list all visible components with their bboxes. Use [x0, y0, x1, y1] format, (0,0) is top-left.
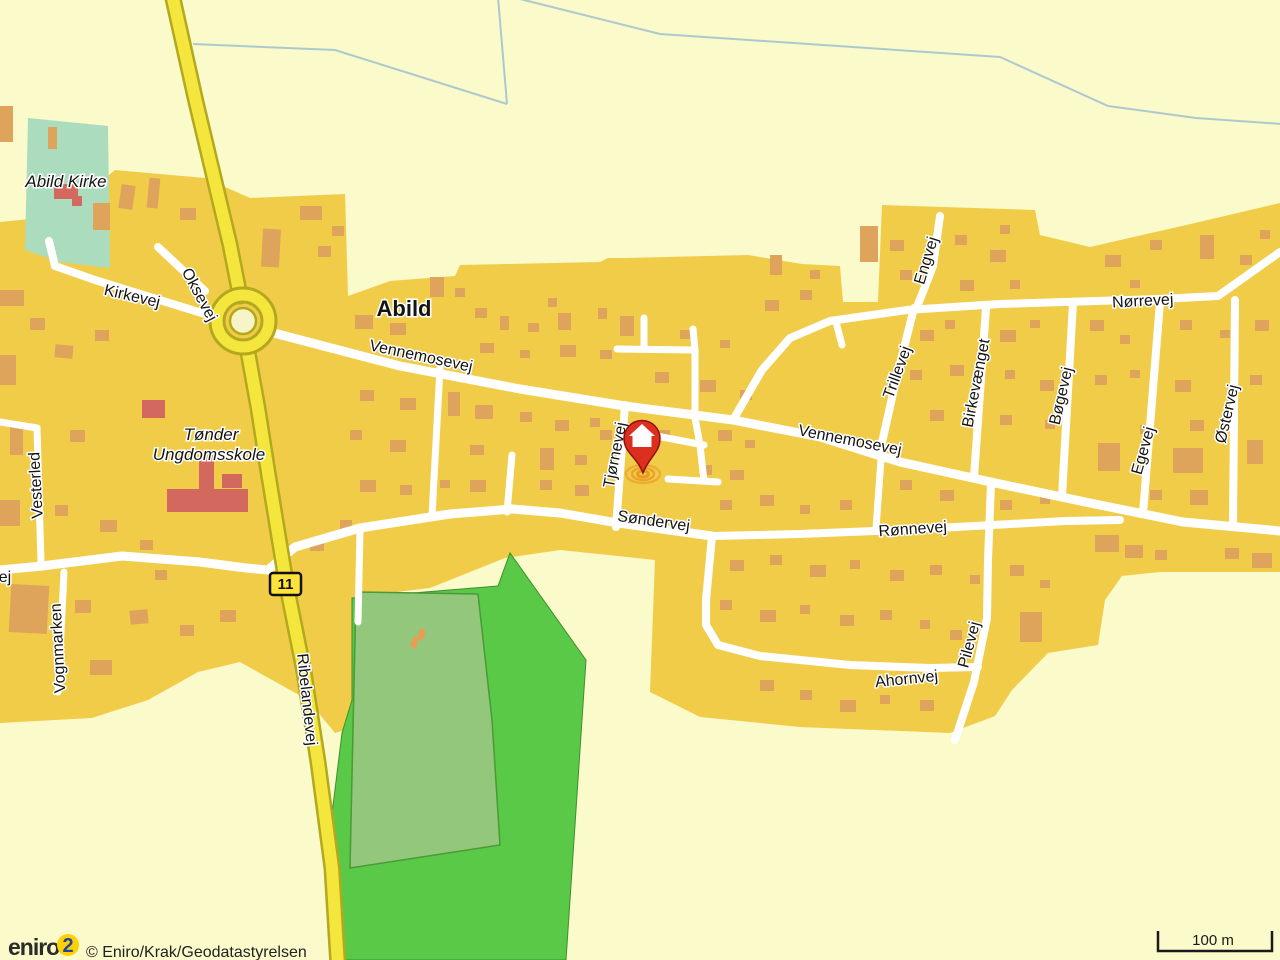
- route-badge: 11: [270, 573, 301, 595]
- school-building: [142, 400, 165, 418]
- roundabout: [217, 295, 269, 347]
- svg-text:2: 2: [62, 935, 73, 957]
- scale-bar-label: 100 m: [1192, 932, 1234, 949]
- map-canvas[interactable]: Kirkevej Oksevej Vennemosevej Vennemosev…: [0, 0, 1280, 960]
- place-label-town: Abild: [377, 296, 432, 321]
- field-area: [330, 553, 586, 960]
- place-label-school-line2: Ungdomsskole: [153, 445, 265, 464]
- eniro-logo-text: eniro: [8, 934, 60, 960]
- copyright-text: © Eniro/Krak/Geodatastyrelsen: [86, 944, 307, 960]
- street-label-norrevej: Nørrevej: [1112, 291, 1174, 311]
- route-badge-number: 11: [278, 576, 294, 593]
- street-label-partial-west: ej: [0, 569, 11, 586]
- place-label-school-line1: Tønder: [184, 425, 240, 444]
- place-label-church: Abild Kirke: [24, 172, 106, 191]
- street-label-vesterled: Vesterled: [26, 451, 46, 519]
- map-svg[interactable]: Kirkevej Oksevej Vennemosevej Vennemosev…: [0, 0, 1280, 960]
